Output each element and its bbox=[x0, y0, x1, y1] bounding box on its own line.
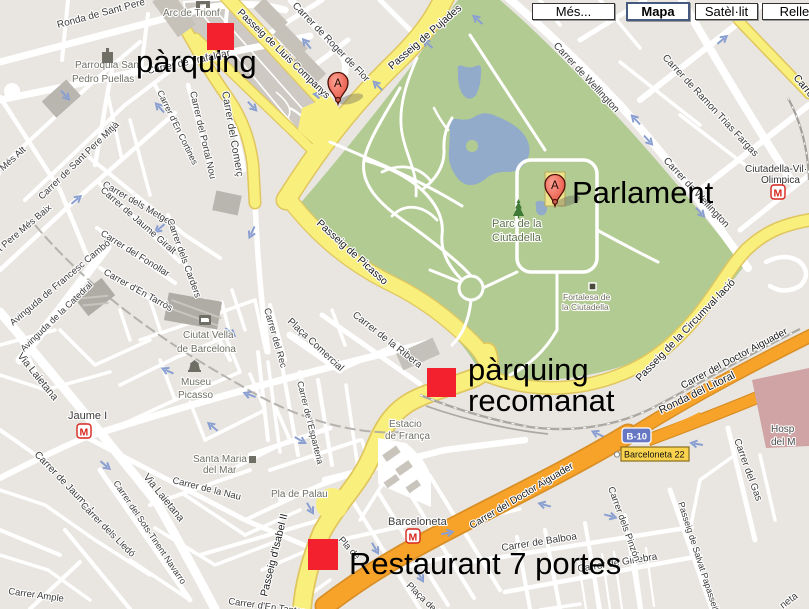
svg-text:M: M bbox=[80, 427, 89, 439]
svg-text:de França: de França bbox=[385, 431, 430, 442]
svg-text:Fortalesa de: Fortalesa de bbox=[563, 292, 611, 302]
svg-text:A: A bbox=[334, 78, 342, 90]
svg-text:M: M bbox=[409, 532, 418, 544]
svg-text:Parlament: Parlament bbox=[572, 175, 714, 210]
svg-text:Parc de la: Parc de la bbox=[492, 218, 542, 230]
svg-text:Arc de Trionf: Arc de Trionf bbox=[163, 8, 220, 19]
svg-text:Museu: Museu bbox=[181, 377, 211, 388]
svg-text:del Mar: del Mar bbox=[203, 465, 237, 476]
svg-text:Barceloneta 22: Barceloneta 22 bbox=[624, 450, 685, 460]
svg-text:Hosp: Hosp bbox=[771, 424, 795, 435]
svg-text:Ciutadella-Vil·: Ciutadella-Vil· bbox=[745, 164, 807, 175]
svg-text:Ciutadella: Ciutadella bbox=[492, 232, 542, 244]
svg-text:Picasso: Picasso bbox=[178, 390, 213, 401]
svg-text:B-10: B-10 bbox=[627, 432, 648, 443]
svg-text:Estacio: Estacio bbox=[389, 419, 422, 430]
svg-text:Restaurant 7 portes: Restaurant 7 portes bbox=[349, 546, 621, 581]
svg-text:M: M bbox=[774, 188, 783, 200]
svg-text:Pla de Palau: Pla de Palau bbox=[271, 489, 328, 500]
svg-text:Ciutat Vella: Ciutat Vella bbox=[183, 330, 234, 341]
svg-text:la Ciutadella: la Ciutadella bbox=[562, 302, 609, 312]
svg-text:del M: del M bbox=[771, 437, 795, 448]
svg-text:Jaume I: Jaume I bbox=[68, 410, 107, 422]
svg-text:Pedro Puellas: Pedro Puellas bbox=[72, 74, 134, 85]
svg-text:Barceloneta: Barceloneta bbox=[388, 516, 448, 528]
svg-text:A: A bbox=[551, 180, 559, 192]
svg-text:recomanat: recomanat bbox=[468, 383, 615, 418]
svg-text:pàrquing: pàrquing bbox=[468, 352, 589, 387]
svg-text:pàrquing: pàrquing bbox=[136, 44, 257, 79]
svg-text:Santa Maria: Santa Maria bbox=[193, 454, 247, 465]
svg-text:de Barcelona: de Barcelona bbox=[177, 344, 236, 355]
